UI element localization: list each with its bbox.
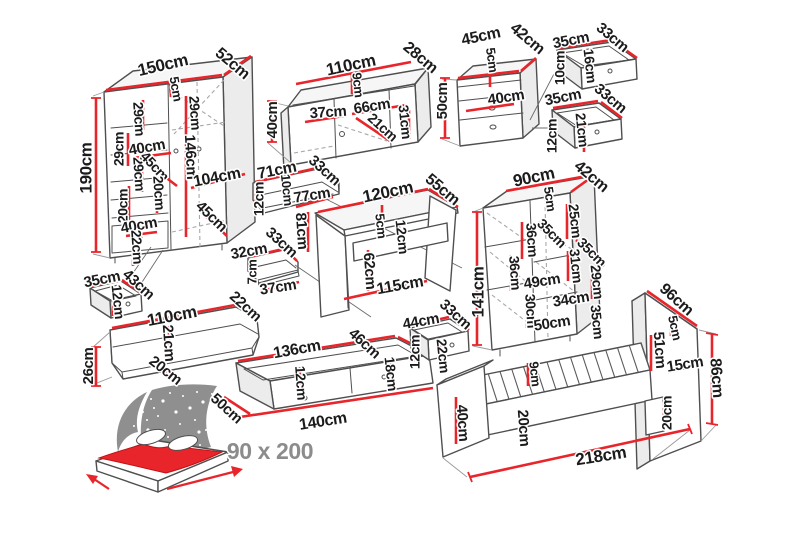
bed-dim-label: 20cm	[659, 396, 675, 430]
bed-icon-dim-label: 90 x 200	[227, 438, 313, 464]
nightstand-dim-label: 45cm	[460, 24, 502, 49]
width-arrow	[86, 474, 109, 489]
underbed-drawer-136-dim-label: 140cm	[298, 410, 348, 434]
wardrobe-dim-label: 190cm	[76, 142, 95, 193]
desk-dim-label: 5cm	[372, 213, 390, 239]
wardrobe-dim-label: 29cm	[186, 95, 204, 130]
desk-dim-label: 81cm	[292, 212, 312, 250]
wardrobe-dim-label: 20cm	[150, 175, 168, 210]
bed-dim-label: 9cm	[526, 361, 544, 387]
bed-dim-label: 20cm	[514, 409, 534, 447]
nightstand-dim-label: 50cm	[434, 83, 451, 120]
wardrobe-dim-label: 29cm	[130, 101, 148, 136]
underbed-drawer-136-dim-label: 50cm	[207, 390, 246, 427]
bed-dim-label: 40cm	[453, 404, 473, 442]
wall-shelf-110-dim-label: 26cm	[80, 348, 97, 385]
drawer-44-dim-label: 22cm	[434, 338, 453, 374]
desk-drawing	[308, 189, 458, 317]
tv-stand-dim-label: 40cm	[264, 102, 281, 139]
bookcase-dim-label: 36cm	[506, 255, 524, 290]
bed-dim-label: 218cm	[574, 443, 628, 470]
drawer-44-dim-label: 12cm	[407, 335, 423, 369]
wardrobe-dim-label: 22cm	[128, 229, 146, 264]
tv-stand-dim-label: 37cm	[309, 103, 347, 123]
underbed-drawer-136-dim-label: 12cm	[292, 365, 310, 400]
nightstand-dim-label: 42cm	[507, 20, 548, 58]
desk-dim-label: 115cm	[375, 273, 424, 298]
bookcase-dim-label: 141cm	[468, 266, 487, 317]
wall-shelf-32-dim-label: 7cm	[244, 260, 259, 285]
furniture-dimension-diagram: Bedroom furniture set dimension diagram	[0, 0, 800, 533]
wall-shelf-71-dim-label: 12cm	[251, 182, 267, 216]
tv-stand-dim-label: 9cm	[349, 72, 367, 98]
wardrobe-dim-label: 29cm	[111, 132, 127, 166]
bookcase-dim-label: 35cm	[588, 304, 607, 340]
bed-dim-label: 86cm	[706, 358, 726, 399]
drawer-top-b-dim-label: 12cm	[544, 119, 560, 153]
diagram-canvas: Bedroom furniture set dimension diagram	[0, 0, 800, 533]
drawer-top-a-dim-label: 10cm	[552, 51, 568, 85]
